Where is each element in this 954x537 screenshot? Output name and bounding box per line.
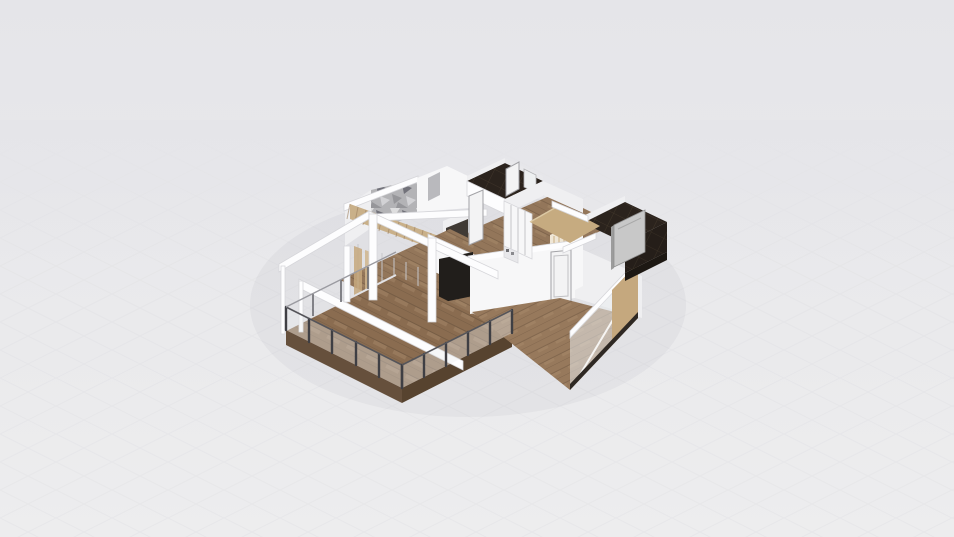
pergola-post	[281, 266, 285, 334]
shower-cabin-side	[611, 225, 614, 270]
structural-column	[344, 246, 350, 302]
structural-column	[369, 214, 377, 300]
app-viewport	[0, 0, 954, 537]
hallway-door[interactable]	[469, 190, 483, 245]
shelf-item	[506, 249, 509, 252]
floorplan-3d-viewport[interactable]	[0, 0, 954, 537]
shelf-item	[511, 252, 514, 255]
structural-column	[428, 238, 436, 322]
